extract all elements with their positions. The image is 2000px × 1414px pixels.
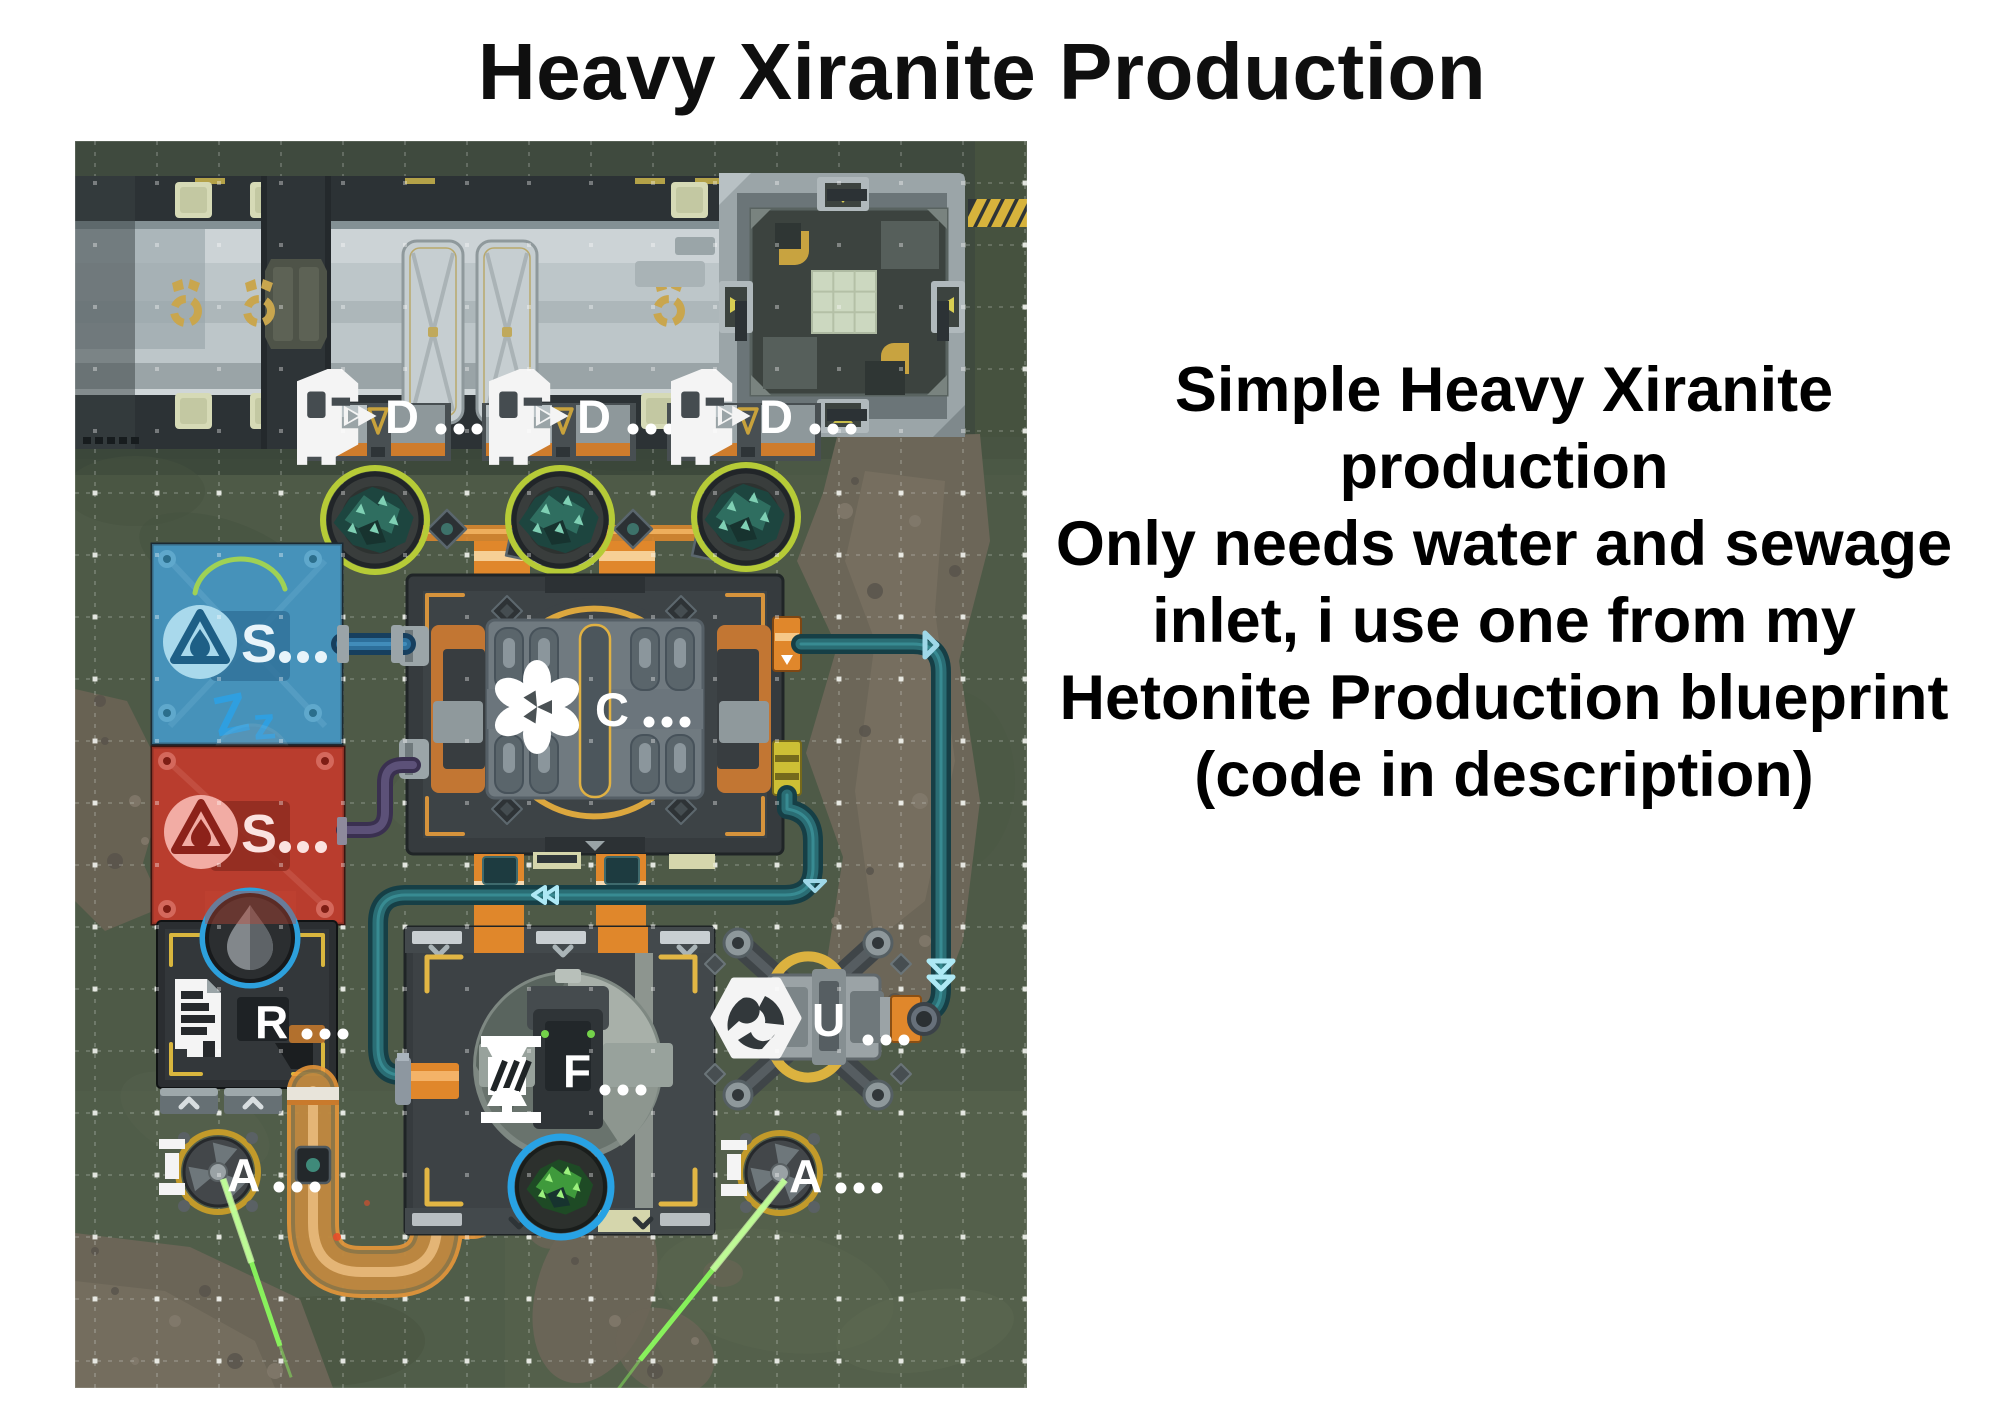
svg-text:C: C bbox=[595, 683, 629, 736]
svg-text:S: S bbox=[241, 804, 277, 864]
svg-text:R: R bbox=[255, 996, 288, 1048]
svg-text:D: D bbox=[759, 390, 793, 443]
svg-text:A: A bbox=[227, 1149, 260, 1201]
svg-text:F: F bbox=[563, 1045, 591, 1097]
svg-text:A: A bbox=[789, 1150, 822, 1202]
svg-text:D: D bbox=[577, 390, 611, 443]
svg-text:S: S bbox=[241, 614, 277, 674]
svg-text:U: U bbox=[812, 994, 845, 1046]
svg-text:D: D bbox=[385, 390, 419, 443]
